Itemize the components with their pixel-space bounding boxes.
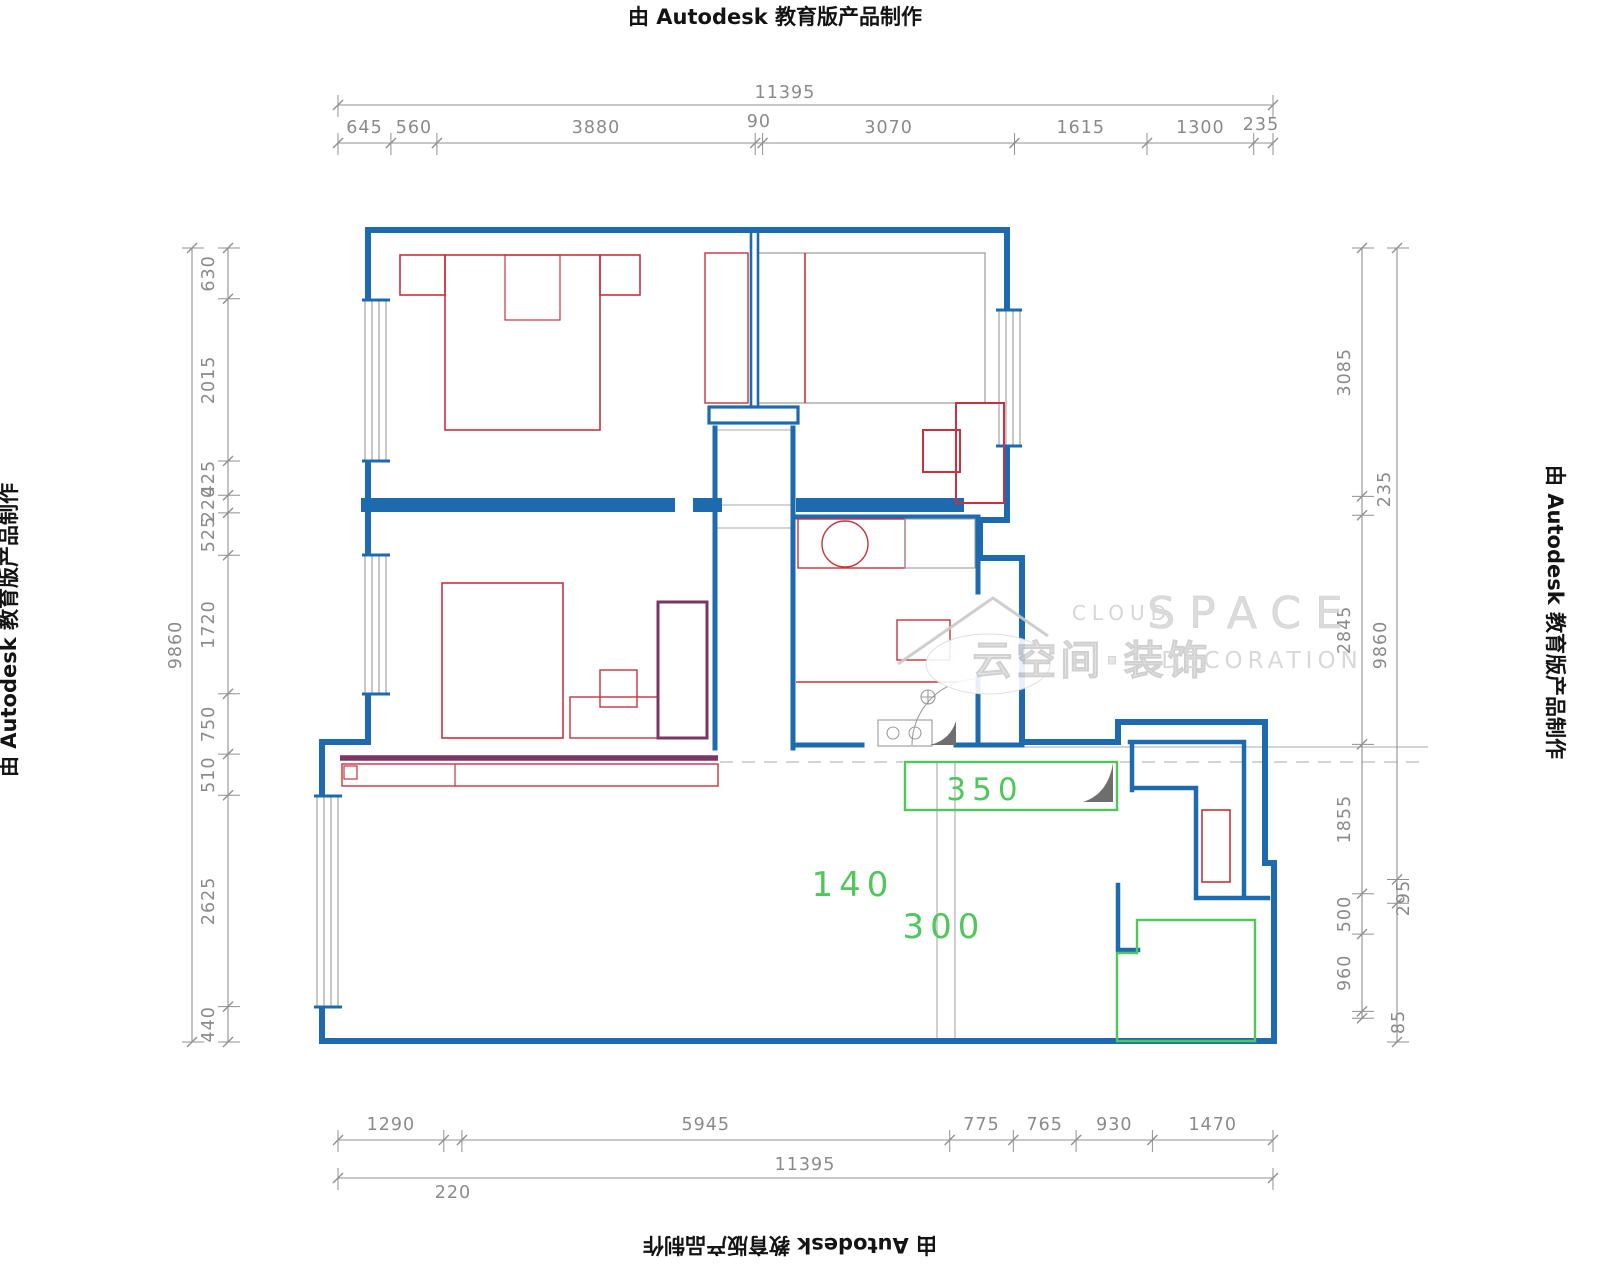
dim-label: 90 <box>747 112 771 132</box>
outer-wall <box>322 230 1274 1041</box>
counter-gray <box>905 519 975 568</box>
autodesk-watermark-top: 由 Autodesk 教育版产品制作 <box>628 5 922 29</box>
dim-label: 500 <box>1335 896 1355 932</box>
right-outer-dim: 9860295 <box>1371 243 1414 1047</box>
window-living <box>314 796 342 1007</box>
door-leaf-hall <box>1083 763 1113 802</box>
walls <box>322 230 1274 1041</box>
floorplan-svg: 350140300 113956455603880903070161513002… <box>0 0 1600 1280</box>
bottom-total-dim: 11395 <box>333 1155 1278 1190</box>
dim-label: 85 <box>1389 1010 1409 1034</box>
wardrobe-1 <box>705 253 748 403</box>
dim-label: 560 <box>396 118 432 138</box>
bed-2 <box>758 253 985 403</box>
purple-layer <box>340 602 718 758</box>
nightstand-right <box>600 255 640 295</box>
dim-label: 765 <box>1026 1115 1062 1135</box>
dim-label: 2625 <box>199 877 219 926</box>
dim-label: 3070 <box>864 118 913 138</box>
dim-label: 930 <box>1096 1115 1132 1135</box>
bed-gray-outline <box>758 253 985 403</box>
dim-label: 645 <box>346 118 382 138</box>
dim-label: 235 <box>1375 471 1395 507</box>
dim-label: 1300 <box>1176 118 1225 138</box>
left-segments-dim: 630201542522052517207505102625440 <box>199 243 240 1047</box>
autodesk-watermark-bottom: 由 Autodesk 教育版产品制作 <box>643 1233 937 1257</box>
dim-label: 3085 <box>1335 348 1355 397</box>
dim-label: 235 <box>1243 115 1279 135</box>
kitchen-counter <box>798 519 905 568</box>
dim-label: 9860 <box>166 621 186 670</box>
dim-label: 440 <box>199 1006 219 1042</box>
dim-label: 11395 <box>755 83 816 103</box>
dimension-chains: 1139564556038809030701615130023512905945… <box>166 83 1414 1203</box>
dim-label: 525 <box>199 516 219 552</box>
bed-1-pillow <box>505 255 560 320</box>
wall-toilet <box>1130 742 1268 898</box>
top-segments-dim: 645560388090307016151300235 <box>333 112 1279 155</box>
dim-label: 750 <box>199 706 219 742</box>
wall-balcony-stub <box>1118 885 1138 950</box>
center-watermark: CLOUD SPACE 云空间·装饰 DECORATION <box>898 588 1363 694</box>
desk-3 <box>570 697 658 738</box>
toilet-fixture <box>1202 810 1230 882</box>
dim-label: 295 <box>1394 880 1414 916</box>
dim-label: 1720 <box>199 600 219 649</box>
reference-lines <box>716 430 1428 1039</box>
dim-label: 510 <box>199 756 219 792</box>
kitchen-basin <box>822 521 868 567</box>
nightstand-left <box>400 255 445 295</box>
logo-decoration-text: DECORATION <box>1161 648 1363 674</box>
window-bedroom1 <box>362 300 390 461</box>
green-room-outline <box>1117 920 1255 1041</box>
tv-cabinet-box <box>344 766 357 779</box>
dim-label: 1470 <box>1188 1115 1237 1135</box>
chair-2 <box>923 430 960 472</box>
cad-drawing-canvas: 350140300 113956455603880903070161513002… <box>0 0 1600 1280</box>
green-dimension-label: 300 <box>903 907 986 947</box>
window-bedroom2 <box>996 310 1022 446</box>
dim-label: 220 <box>435 1183 471 1203</box>
green-labels: 350140300 <box>812 772 1024 947</box>
dim-label: 9860 <box>1371 621 1391 670</box>
stove <box>878 720 932 746</box>
window-bedroom3 <box>362 555 390 694</box>
furniture-red <box>342 253 1230 882</box>
logo-space-text: SPACE <box>1147 588 1357 639</box>
dim-label: 1855 <box>1335 795 1355 844</box>
kitchen-gray <box>878 519 978 746</box>
stove-burner-2 <box>909 727 921 739</box>
window-body <box>996 310 1022 446</box>
bed-3 <box>442 583 563 738</box>
autodesk-watermark-left: 由 Autodesk 教育版产品制作 <box>0 483 21 777</box>
green-dimension-label: 350 <box>946 772 1023 808</box>
dim-label: 3880 <box>572 118 621 138</box>
stove-burner-1 <box>887 727 899 739</box>
door-leaf-kitchen <box>930 721 956 745</box>
tv-cabinet <box>342 764 718 786</box>
dim-label: 11395 <box>775 1155 836 1175</box>
green-dimension-label: 140 <box>812 865 895 905</box>
chair-3 <box>600 670 637 707</box>
dim-label: 960 <box>1335 955 1355 991</box>
autodesk-watermark-right: 由 Autodesk 教育版产品制作 <box>1543 465 1567 759</box>
bed-1 <box>445 255 600 430</box>
top-total-dim: 11395 <box>333 83 1278 117</box>
dim-label: 1290 <box>367 1115 416 1135</box>
windows <box>314 300 1022 1007</box>
duct-shaft <box>709 407 798 423</box>
wardrobe-3 <box>658 602 707 738</box>
dim-label: 2015 <box>199 356 219 405</box>
dim-label: 5945 <box>682 1115 731 1135</box>
dim-label: 630 <box>199 255 219 291</box>
dim-label: 1615 <box>1057 118 1106 138</box>
dim-label: 775 <box>963 1115 999 1135</box>
